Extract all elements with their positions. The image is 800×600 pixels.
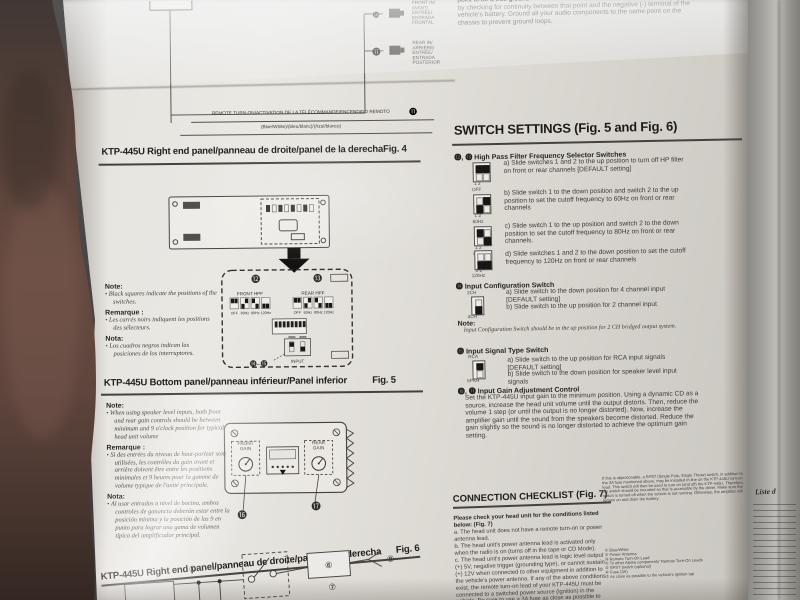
callout-11-icon: ⓫ [409,106,417,117]
hpf-item-b: b) Slide switch 1 to the down position a… [504,186,692,212]
input-switch-icon [284,336,310,356]
nota-text: • Los cuadros negros indican las posicio… [105,341,217,358]
dip-bank-icon [272,319,306,334]
freq-label: OFF [294,311,302,315]
note-text: • Black squares indicate the positions o… [105,290,217,307]
callout-6-icon: ⑥ [325,560,334,571]
page-edge-shadow [60,578,750,600]
note-text: Input Configuration Switch should be in … [464,323,707,336]
fig4-notes: Note: • Black squares indicate the posit… [105,280,218,359]
page-edge-shadow [723,0,748,600]
hpf-item-a: a) Slide switches 1 and 2 to the up posi… [503,156,691,175]
remarque-text: • Les carrés noirs indiquent les positio… [105,315,217,332]
hpf-item-d: d) Slide switches 1 and 2 to the down po… [505,247,693,266]
input-gain-paragraph: Set the KTP-445U input gain to the minim… [465,390,706,440]
front-hpf-dip-switches [230,298,270,309]
freq-label: 80Hz [251,311,260,315]
fig5-number: Fig. 5 [372,375,396,386]
freq-label: 60Hz [241,311,250,315]
heading-rule [452,138,742,146]
input-signal-item-b: b) Slide switch to the down position for… [507,367,697,386]
right-column: point to be a true ground by checking fo… [445,0,754,478]
freq-label: 120Hz [261,311,272,315]
freq-label: 60Hz [304,311,313,315]
slide-switch-icon [472,360,485,379]
input-label: INPUT [291,359,305,364]
side-page: Liste d [748,0,800,600]
freq-label: 120Hz [472,273,493,278]
fig5-switch-detail-drawing: ⓬ ⓭ FRONT HPF REAR HPF [210,259,356,375]
callout-14-15-icon: ⓮–⓯ [250,360,268,368]
rear-hpf-label: REAR HPF [301,290,324,295]
front-hpf-label: FRONT HPF [237,291,263,296]
switch-pos-label: 4CH [467,314,483,319]
freq-label: 120Hz [324,310,335,314]
glare-highlight [190,120,480,270]
rear-hpf-dip-switches [293,297,333,308]
slide-switch-icon [471,296,484,315]
callout-17-icon: ⓱ [311,501,321,512]
fig5-title: KTP-445U Bottom panel/panneau inférieur/… [104,375,347,389]
freq-label: OFF [231,311,239,315]
hpf-item-c: c) Slide switch 1 to the up position and… [505,219,693,245]
switch-pos-label: SPKR [467,378,485,383]
switch-pos-label: RCA [468,354,484,359]
photo-of-manual: ❿ ⓫ FRONT IN/ AVANT/ ENTRÉE/ ENTRADA FRO… [0,0,800,600]
switch-pos-label: 2CH [467,290,483,295]
side-page-text-lines [753,504,796,596]
switch-settings-heading: SWITCH SETTINGS (Fig. 5 and Fig. 6) [454,118,678,137]
manual-page: ❿ ⓫ FRONT IN/ AVANT/ ENTRÉE/ ENTRADA FRO… [0,0,800,600]
callout-8-icon: ⑧ [386,554,395,565]
fig5-heading: KTP-445U Bottom panel/panneau inférieur/… [104,375,396,389]
callout-13-icon: ⓭ [313,273,322,283]
callout-12-icon: ⓬ [251,274,260,284]
heatsink-fins [346,429,354,487]
hand [0,0,110,600]
side-page-heading: Liste d [755,487,776,497]
rear-gain-knob-icon [312,457,326,471]
freq-label: 80Hz [314,310,323,314]
